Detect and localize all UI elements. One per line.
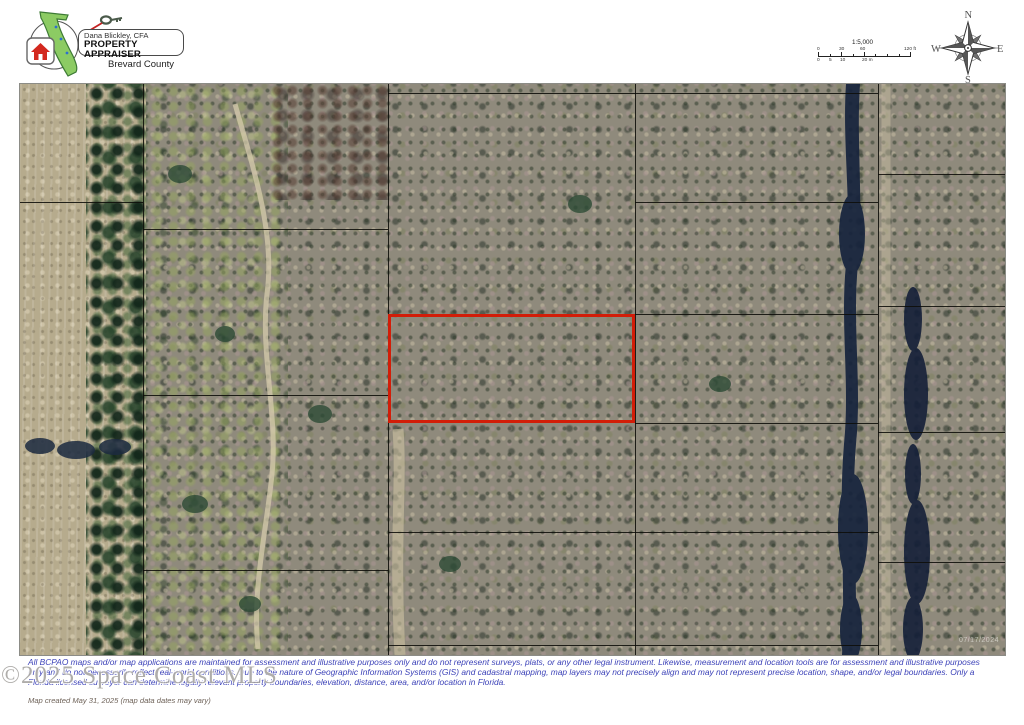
- compass-east-label: E: [997, 44, 1003, 55]
- aerial-map-canvas: 07/17/2024: [20, 84, 1005, 655]
- scale-tick-minor: [875, 54, 876, 57]
- parcel-grid-line: [878, 306, 1005, 307]
- parcel-grid-line: [143, 229, 388, 230]
- subject-parcel-outline: [388, 314, 635, 423]
- compass-south-label: S: [965, 75, 971, 84]
- appraiser-title: PROPERTY APPRAISER: [84, 40, 178, 60]
- mls-watermark: ©2025 Space Coast MLS: [1, 662, 278, 690]
- scale-bar: 1:5,000 0 30 60 120 ft 0 5 10 20 m: [816, 39, 920, 65]
- parcel-grid-line: [143, 570, 388, 571]
- parcel-grid-line: [20, 202, 143, 203]
- scale-m-3: 20 m: [862, 58, 873, 63]
- compass-rose: N S W E: [931, 8, 1005, 84]
- scale-tick: [818, 52, 819, 57]
- parcel-grid-line: [635, 202, 878, 203]
- scale-tick-minor: [899, 54, 900, 57]
- parcel-grid-line: [635, 423, 878, 424]
- scale-tick: [864, 52, 865, 57]
- scale-tick-minor: [887, 54, 888, 57]
- scale-tick: [841, 52, 842, 57]
- scale-tick-minor: [830, 54, 831, 57]
- logo-text-box: Dana Blickley, CFA PROPERTY APPRAISER: [78, 29, 184, 56]
- tree-row-shadow: [25, 438, 131, 459]
- imagery-date-watermark: 07/17/2024: [959, 637, 999, 644]
- parcel-grid-line: [388, 532, 878, 533]
- parcel-grid-line: [635, 84, 636, 655]
- lake-dot: [55, 26, 58, 29]
- pond-chain-right: [903, 287, 930, 655]
- property-appraiser-logo: Dana Blickley, CFA PROPERTY APPRAISER Br…: [24, 5, 194, 81]
- compass-west-label: W: [931, 44, 941, 55]
- parcel-grid-line: [878, 84, 879, 655]
- compass-north-label: N: [965, 10, 973, 21]
- house-icon: [27, 38, 54, 64]
- lake-dot: [60, 38, 63, 41]
- county-label: Brevard County: [108, 59, 174, 70]
- scale-m-1: 5: [829, 58, 832, 63]
- creek-water: [838, 84, 868, 655]
- dirt-trail: [235, 104, 273, 649]
- parcel-grid-line: [635, 314, 878, 315]
- dirt-road: [398, 429, 400, 655]
- parcel-grid-line: [143, 395, 388, 396]
- bcpao-map-sheet: Dana Blickley, CFA PROPERTY APPRAISER Br…: [0, 0, 1024, 725]
- parcel-grid-line: [878, 174, 1005, 175]
- compass-star-icon: [942, 22, 994, 74]
- map-created-note: Map created May 31, 2025 (map data dates…: [28, 696, 211, 705]
- parcel-grid-line: [878, 432, 1005, 433]
- scale-ratio: 1:5,000: [852, 39, 873, 46]
- parcel-grid-line: [388, 93, 878, 94]
- scale-tick: [910, 52, 911, 57]
- parcel-grid-line: [878, 562, 1005, 563]
- scale-tick-minor: [853, 54, 854, 57]
- scale-m-0: 0: [817, 58, 820, 63]
- parcel-grid-line: [388, 645, 878, 646]
- scale-m-2: 10: [840, 58, 845, 63]
- lake-dot: [66, 52, 69, 55]
